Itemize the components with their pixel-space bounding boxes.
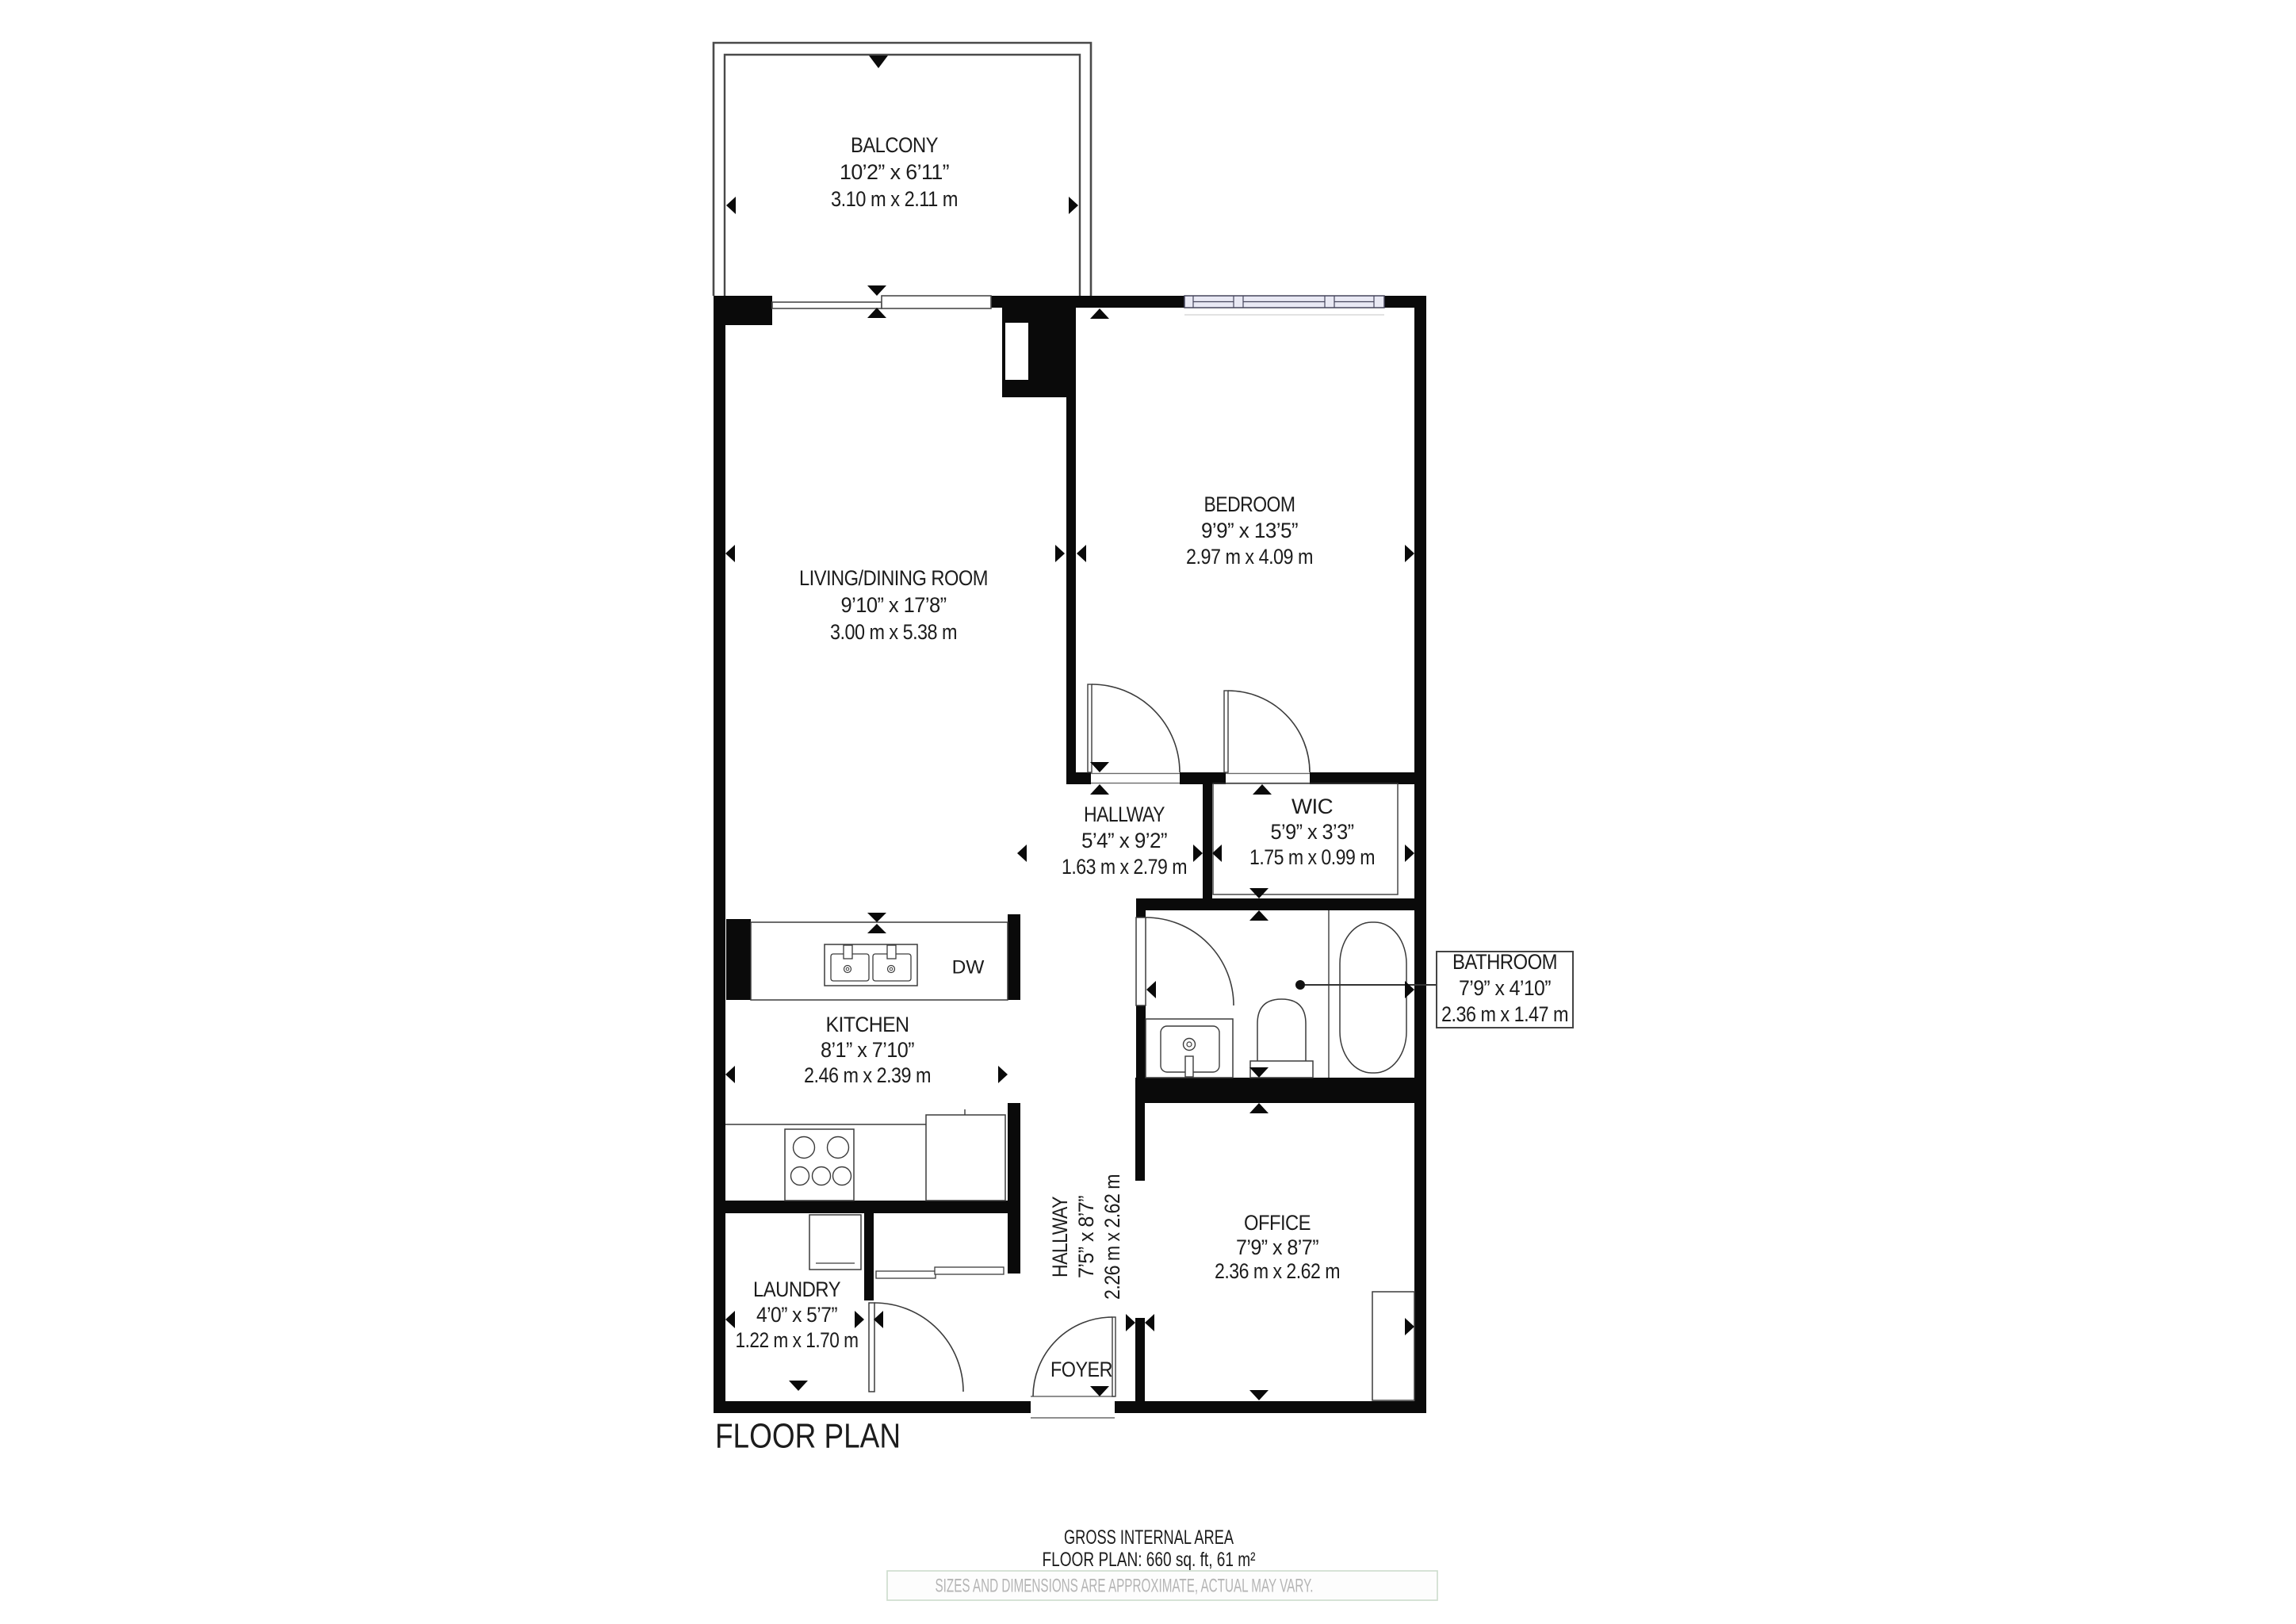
svg-text:1.63 m x 2.79 m: 1.63 m x 2.79 m xyxy=(1062,855,1187,879)
svg-text:2.36 m x 2.62 m: 2.36 m x 2.62 m xyxy=(1215,1259,1340,1283)
svg-text:HALLWAY: HALLWAY xyxy=(1084,802,1165,826)
svg-text:GROSS INTERNAL AREA: GROSS INTERNAL AREA xyxy=(1064,1526,1234,1549)
svg-text:2.97 m x 4.09 m: 2.97 m x 4.09 m xyxy=(1186,545,1313,569)
svg-text:FOYER: FOYER xyxy=(1050,1358,1112,1381)
svg-text:3.10 m x 2.11 m: 3.10 m x 2.11 m xyxy=(831,187,958,211)
svg-text:FLOOR PLAN: FLOOR PLAN xyxy=(715,1417,901,1456)
svg-text:KITCHEN: KITCHEN xyxy=(826,1013,909,1036)
svg-text:1.75 m x 0.99 m: 1.75 m x 0.99 m xyxy=(1249,845,1375,869)
svg-text:9’9” x 13’5”: 9’9” x 13’5” xyxy=(1201,519,1298,542)
svg-text:BEDROOM: BEDROOM xyxy=(1204,492,1295,516)
svg-text:BALCONY: BALCONY xyxy=(851,133,939,157)
svg-text:HALLWAY: HALLWAY xyxy=(1048,1197,1072,1277)
svg-text:5’4” x 9’2”: 5’4” x 9’2” xyxy=(1081,829,1167,852)
svg-text:FLOOR PLAN: 660 sq. ft, 61 m²: FLOOR PLAN: 660 sq. ft, 61 m² xyxy=(1043,1549,1256,1571)
svg-text:WIC: WIC xyxy=(1291,795,1333,818)
svg-text:3.00 m x 5.38 m: 3.00 m x 5.38 m xyxy=(830,620,957,644)
svg-text:4’0” x 5’7”: 4’0” x 5’7” xyxy=(756,1303,837,1327)
svg-text:7’5” x 8’7”: 7’5” x 8’7” xyxy=(1074,1196,1098,1278)
svg-text:2.36 m x 1.47 m: 2.36 m x 1.47 m xyxy=(1441,1002,1568,1026)
svg-text:7’9” x 4’10”: 7’9” x 4’10” xyxy=(1459,976,1551,1000)
svg-text:SIZES AND DIMENSIONS ARE APPRO: SIZES AND DIMENSIONS ARE APPROXIMATE, AC… xyxy=(936,1576,1314,1597)
svg-text:LIVING/DINING ROOM: LIVING/DINING ROOM xyxy=(799,566,988,590)
svg-text:BATHROOM: BATHROOM xyxy=(1452,950,1557,974)
svg-text:10’2” x 6’11”: 10’2” x 6’11” xyxy=(840,160,949,184)
svg-text:7’9” x 8’7”: 7’9” x 8’7” xyxy=(1236,1235,1318,1259)
svg-text:5’9” x 3’3”: 5’9” x 3’3” xyxy=(1271,820,1354,844)
svg-text:OFFICE: OFFICE xyxy=(1244,1211,1311,1235)
svg-text:2.46 m x 2.39 m: 2.46 m x 2.39 m xyxy=(804,1063,931,1087)
svg-text:DW: DW xyxy=(952,957,985,979)
svg-text:1.22 m x 1.70 m: 1.22 m x 1.70 m xyxy=(736,1328,859,1352)
svg-text:LAUNDRY: LAUNDRY xyxy=(753,1277,841,1301)
svg-text:9’10” x 17’8”: 9’10” x 17’8” xyxy=(841,593,947,617)
svg-text:2.26 m x 2.62 m: 2.26 m x 2.62 m xyxy=(1100,1174,1124,1300)
svg-text:8’1” x 7’10”: 8’1” x 7’10” xyxy=(821,1038,914,1062)
